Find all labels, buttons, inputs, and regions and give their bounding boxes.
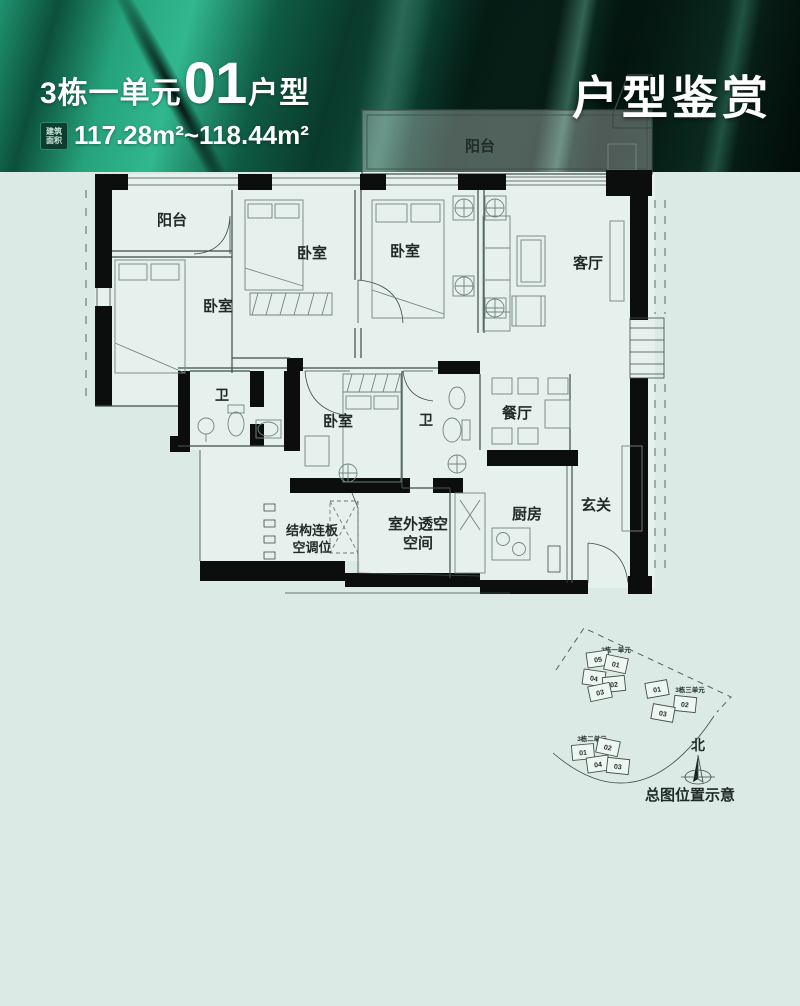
area-row: 建筑 面积 117.28m²~118.44m² [40, 120, 310, 151]
site-plan-caption: 总图位置示意 [645, 786, 735, 804]
unit-title-suffix: 户型 [248, 68, 310, 112]
unit-label: 04 [594, 761, 603, 769]
building-cluster-2: 3栋三单元 01 02 03 [645, 680, 705, 723]
label-bath-2: 卫 [419, 412, 433, 428]
north-needle-light [698, 755, 703, 782]
label-ac-2: 空调位 [292, 540, 331, 555]
north-label: 北 [691, 737, 705, 753]
unit-label: 02 [610, 682, 619, 690]
label-kitchen: 厨房 [512, 505, 542, 523]
label-dining: 餐厅 [502, 404, 532, 422]
label-void-2: 空间 [403, 534, 433, 552]
label-bedroom-2: 卧室 [297, 244, 327, 262]
area-text: 117.28m²~118.44m² [74, 120, 309, 151]
label-ac-1: 结构连板 [286, 523, 339, 538]
unit-label: 02 [681, 702, 690, 710]
building-cluster-3: 3栋二单元 01 02 04 03 [571, 734, 629, 775]
unit-label: 03 [614, 764, 623, 772]
label-balcony-top: 阳台 [465, 137, 495, 155]
unit-label: 01 [653, 686, 662, 694]
unit-label: 05 [594, 656, 603, 664]
banner-left: 3栋一单元 01 户型 建筑 面积 117.28m²~118.44m² [40, 58, 310, 151]
unit-label: 04 [589, 675, 598, 683]
cluster-2-name: 3栋三单元 [675, 685, 705, 694]
label-bedroom-left: 卧室 [203, 297, 233, 315]
area-badge-line2: 面积 [46, 136, 62, 145]
area-badge-line1: 建筑 [46, 127, 62, 136]
label-balcony-left: 阳台 [157, 211, 187, 229]
label-bedroom-4: 卧室 [323, 412, 353, 430]
label-void-1: 室外透空 [388, 515, 448, 533]
unit-label: 01 [579, 750, 587, 758]
unit-label: 03 [658, 710, 667, 718]
unit-number: 01 [184, 58, 247, 110]
page-title: 户型鉴赏 [572, 62, 772, 128]
site-plan-boundary [556, 628, 731, 712]
north-needle-dark [693, 755, 698, 782]
page: 3栋一单元 01 户型 建筑 面积 117.28m²~118.44m² 户型鉴赏 [0, 0, 800, 1006]
north-arrow-icon: 北 [681, 737, 715, 784]
area-badge-icon: 建筑 面积 [40, 122, 68, 150]
site-plan: 3栋一单元 05 01 04 02 03 3栋三单元 01 02 03 3栋二单… [553, 628, 735, 804]
label-entry: 玄关 [581, 496, 611, 514]
unit-title: 3栋一单元 01 户型 [40, 58, 310, 112]
label-bath-1: 卫 [215, 387, 229, 403]
label-living-room: 客厅 [572, 254, 603, 272]
unit-title-prefix: 3栋一单元 [40, 68, 182, 112]
building-cluster-1: 3栋一单元 05 01 04 02 03 [582, 645, 631, 702]
label-bedroom-3: 卧室 [390, 242, 420, 260]
